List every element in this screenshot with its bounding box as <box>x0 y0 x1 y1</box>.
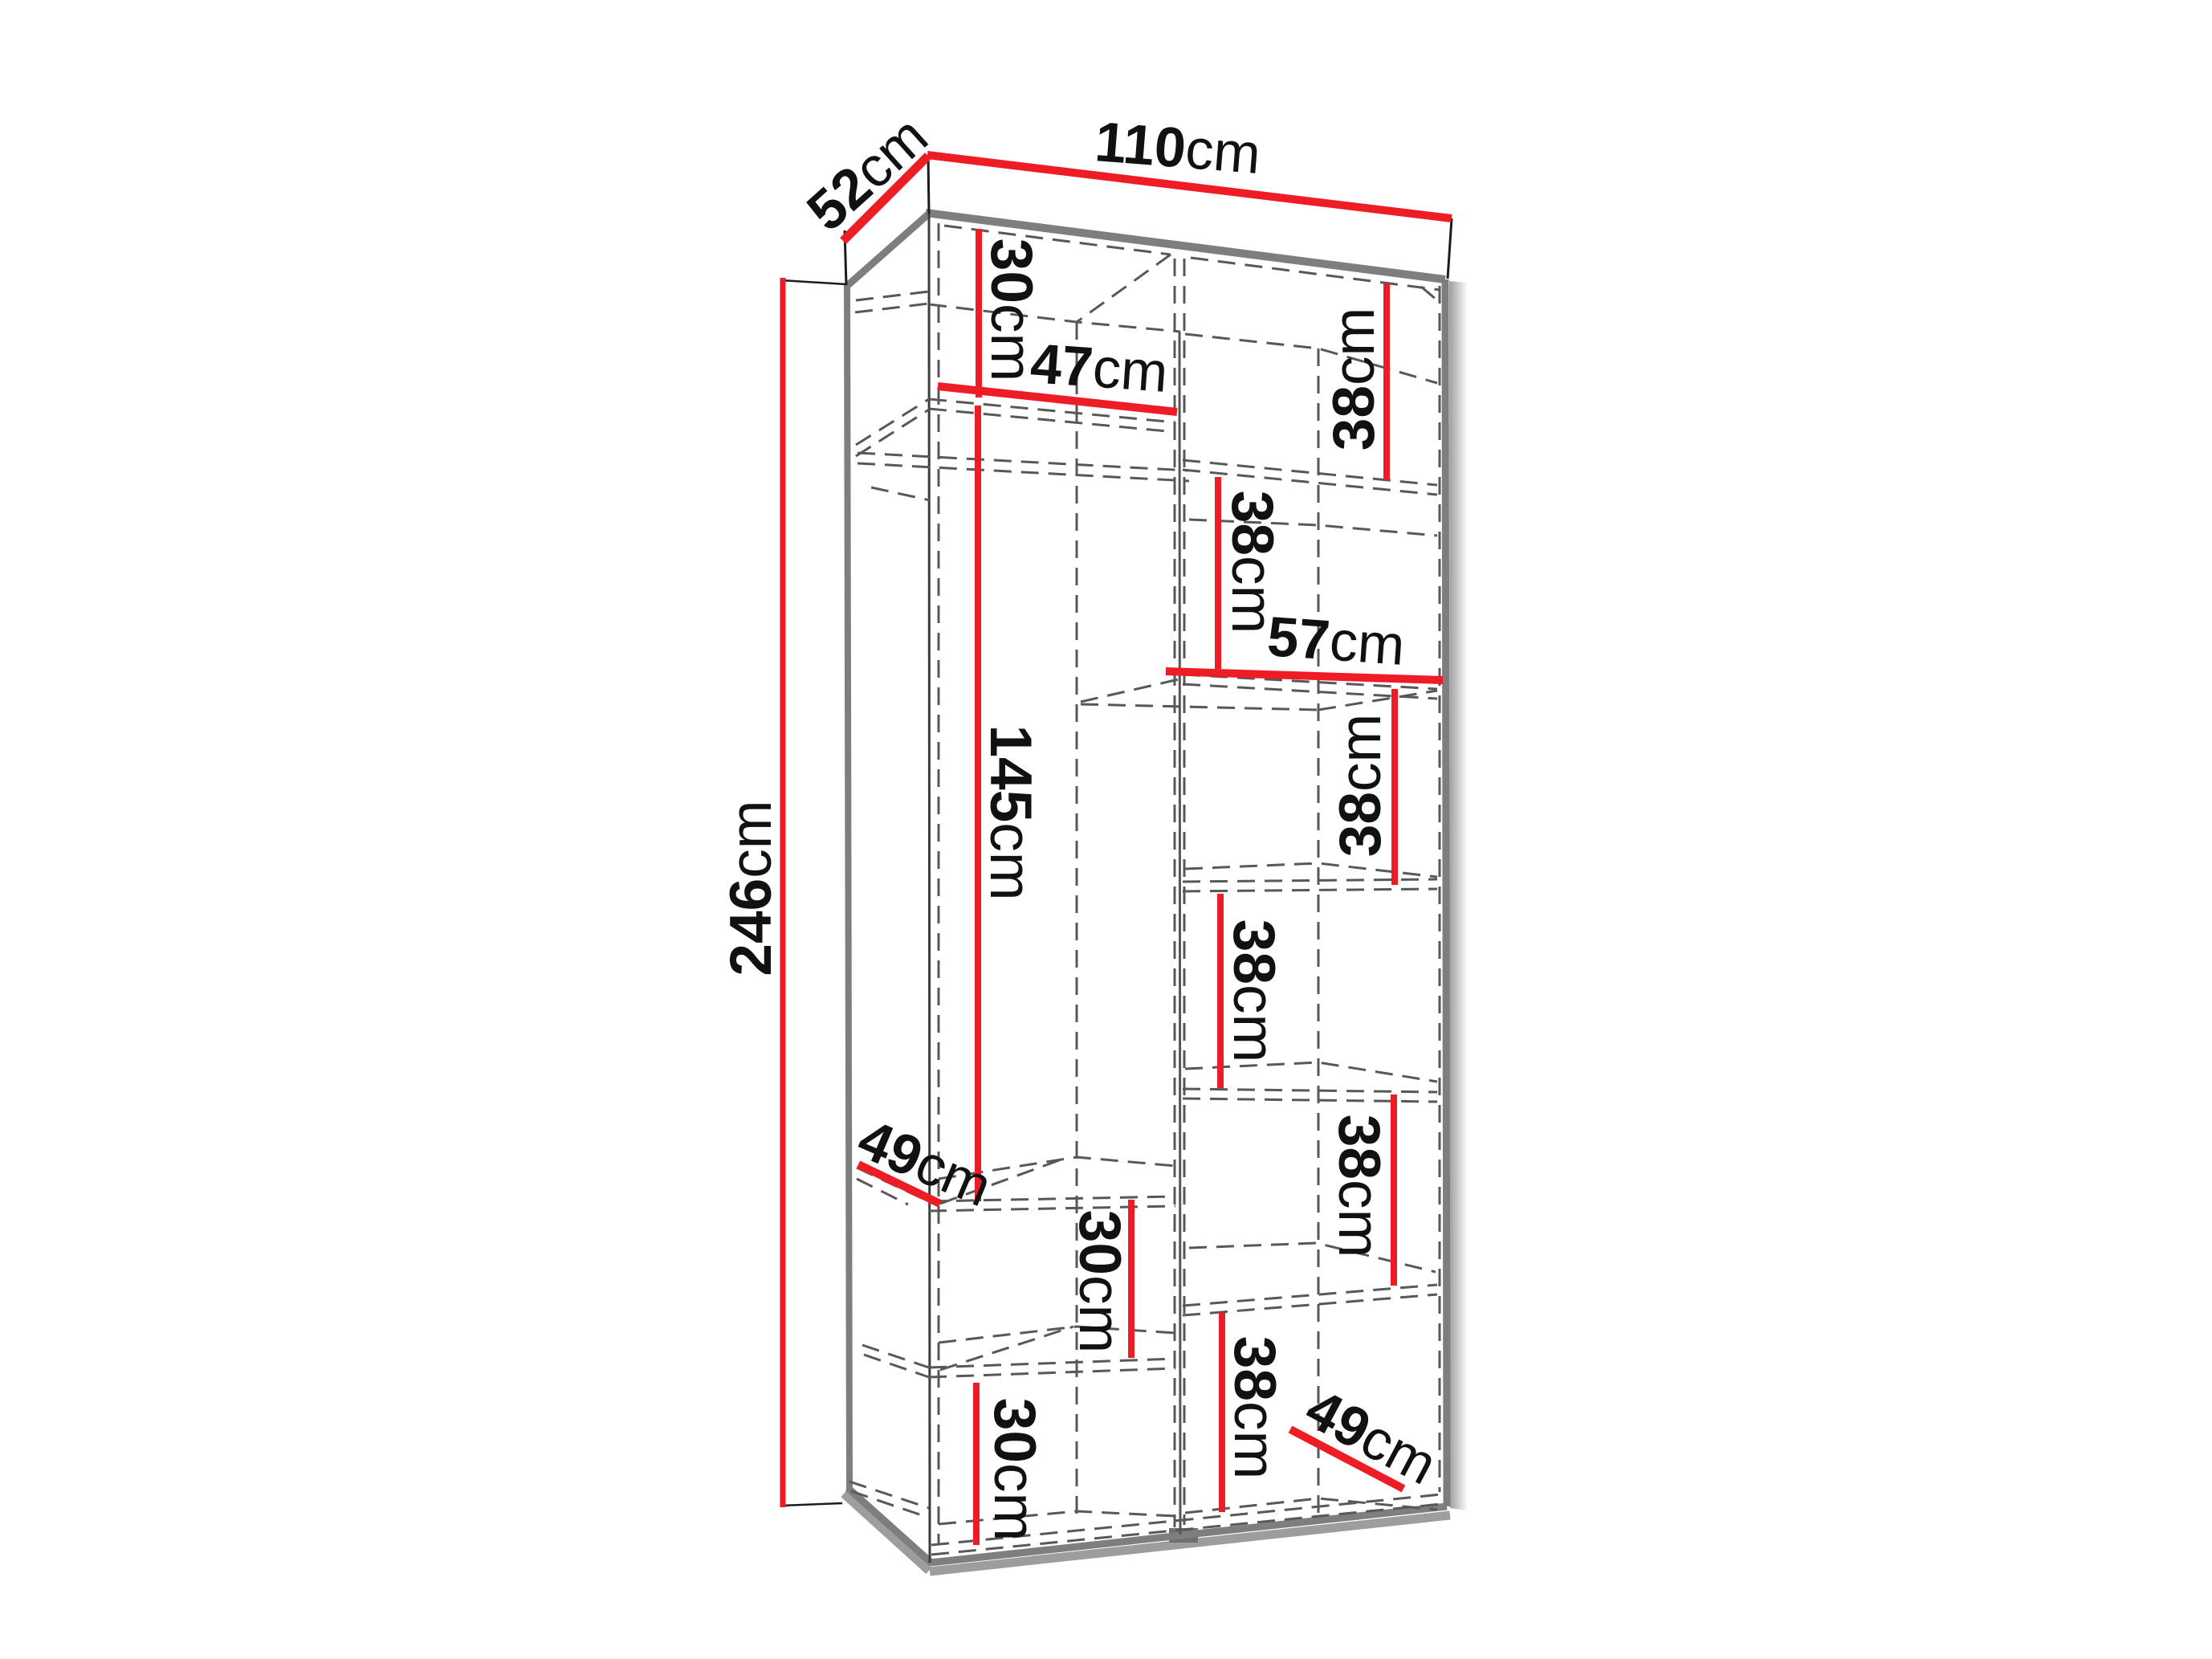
svg-text:38cm: 38cm <box>1223 1336 1288 1480</box>
svg-text:30cm: 30cm <box>1068 1210 1133 1354</box>
svg-text:110cm: 110cm <box>1093 110 1263 185</box>
svg-text:38cm: 38cm <box>1328 714 1393 858</box>
svg-text:57cm: 57cm <box>1265 605 1407 677</box>
svg-text:38cm: 38cm <box>1322 308 1387 451</box>
svg-text:246cm: 246cm <box>719 800 784 976</box>
svg-text:38cm: 38cm <box>1222 919 1287 1063</box>
svg-text:38cm: 38cm <box>1327 1115 1392 1258</box>
svg-text:30cm: 30cm <box>983 1398 1048 1542</box>
svg-text:47cm: 47cm <box>1029 332 1170 404</box>
svg-text:145cm: 145cm <box>979 724 1044 900</box>
